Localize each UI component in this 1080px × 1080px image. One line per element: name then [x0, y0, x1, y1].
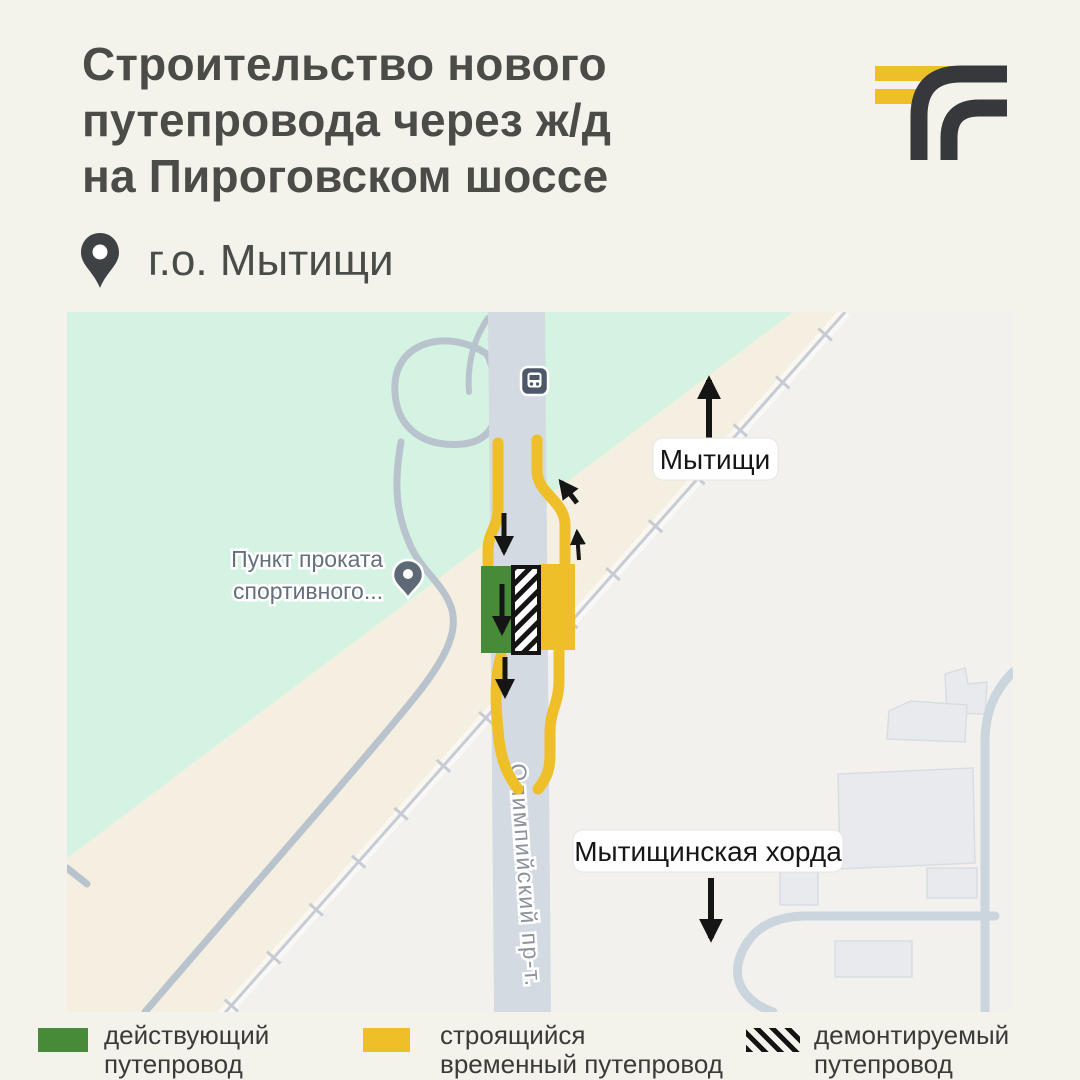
city-label-box: Мытищи [653, 438, 778, 480]
legend-swatch-temporary [363, 1028, 410, 1052]
khorda-label: Мытищинская хорда [574, 836, 842, 867]
arrow-up-bypass-2 [577, 532, 579, 560]
page-title: Строительство нового путепровода через ж… [82, 36, 842, 204]
legend-item-existing: действующий путепровод [104, 1021, 269, 1079]
legend-swatch-existing [38, 1028, 88, 1052]
map: Олимпийский пр-т. Пункт проката спортивн… [67, 312, 1013, 1012]
location-label: г.о. Мытищи [148, 236, 394, 286]
brand-logo [875, 56, 1007, 160]
title-line-3: на Пироговском шоссе [82, 148, 842, 204]
khorda-label-box: Мытищинская хорда [573, 830, 843, 872]
title-line-1: Строительство нового [82, 36, 842, 92]
city-label: Мытищи [660, 444, 771, 475]
existing-bridge [481, 566, 513, 653]
demolished-bridge [513, 567, 539, 653]
poi-label-line-1: Пункт проката [231, 546, 383, 572]
title-line-2: путепровода через ж/д [82, 92, 842, 148]
location-pin-icon [80, 232, 120, 290]
transit-stop-icon [521, 367, 548, 395]
location-row: г.о. Мытищи [80, 232, 394, 290]
legend-swatch-demolished [746, 1028, 800, 1052]
temporary-bridge [539, 564, 575, 650]
legend-item-demolished: демонтируемый путепровод [814, 1021, 1009, 1079]
legend-item-temporary: строящийся временный путепровод [440, 1021, 723, 1079]
logo-road-curve-inner [949, 108, 1007, 160]
poi-label-line-2: спортивного... [233, 578, 383, 604]
